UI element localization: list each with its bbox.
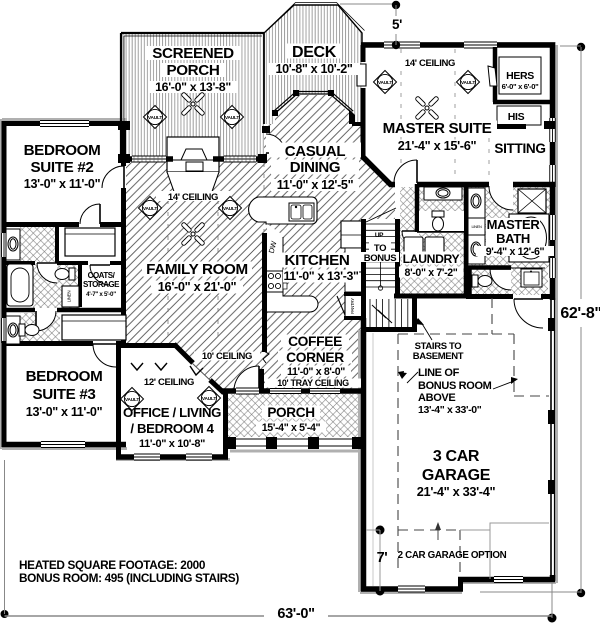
svg-text:13'-4" x 33'-0": 13'-4" x 33'-0" xyxy=(418,404,482,416)
svg-text:MASTER: MASTER xyxy=(487,217,541,232)
svg-text:VAULT: VAULT xyxy=(378,80,393,86)
svg-text:16'-0" x 13'-8": 16'-0" x 13'-8" xyxy=(155,80,231,94)
svg-text:3 CAR: 3 CAR xyxy=(433,448,480,465)
svg-text:DINING: DINING xyxy=(290,159,340,176)
svg-text:HIS: HIS xyxy=(508,111,525,123)
svg-text:VAULT: VAULT xyxy=(125,397,140,403)
svg-text:STORAGE: STORAGE xyxy=(83,280,120,289)
svg-text:LINE OF: LINE OF xyxy=(418,367,460,379)
svg-text:11'-0" x 8'-0": 11'-0" x 8'-0" xyxy=(287,366,345,378)
svg-text:SUITE #2: SUITE #2 xyxy=(30,159,93,176)
svg-text:4'-7" x 5'-0": 4'-7" x 5'-0" xyxy=(86,291,116,298)
svg-text:PORCH: PORCH xyxy=(166,62,219,79)
svg-text:BONUS: BONUS xyxy=(364,253,397,264)
svg-text:DECK: DECK xyxy=(292,44,337,61)
svg-text:HERS: HERS xyxy=(506,70,534,82)
svg-text:11'-0" x 10'-8": 11'-0" x 10'-8" xyxy=(139,438,205,450)
svg-text:6'-0" x 6'-0": 6'-0" x 6'-0" xyxy=(502,82,539,91)
svg-text:BEDROOM: BEDROOM xyxy=(24,142,101,159)
svg-text:LINEN: LINEN xyxy=(471,224,481,229)
svg-text:9'-4" x 12'-6": 9'-4" x 12'-6" xyxy=(486,246,545,258)
svg-text:VAULT: VAULT xyxy=(461,80,476,86)
svg-text:8'-0" x 7'-2": 8'-0" x 7'-2" xyxy=(405,267,458,279)
svg-text:10'-8" x 10'-2": 10'-8" x 10'-2" xyxy=(275,62,352,76)
svg-text:/ BEDROOM 4: / BEDROOM 4 xyxy=(130,421,214,436)
svg-text:16'-0" x 21'-0": 16'-0" x 21'-0" xyxy=(158,279,237,294)
svg-text:10' TRAY CEILING: 10' TRAY CEILING xyxy=(277,378,349,388)
svg-text:21'-4" x 33'-4": 21'-4" x 33'-4" xyxy=(417,484,496,499)
svg-text:2 CAR GARAGE OPTION: 2 CAR GARAGE OPTION xyxy=(398,550,507,561)
svg-text:UP: UP xyxy=(375,232,384,239)
svg-text:GARAGE: GARAGE xyxy=(422,467,491,484)
svg-text:VAULT: VAULT xyxy=(223,206,238,212)
svg-text:BEDROOM: BEDROOM xyxy=(26,368,103,385)
svg-text:KITCHEN: KITCHEN xyxy=(284,252,349,269)
svg-text:FAMILY ROOM: FAMILY ROOM xyxy=(146,261,248,278)
svg-text:63'-0": 63'-0" xyxy=(277,606,314,622)
svg-text:VAULT: VAULT xyxy=(143,206,158,212)
svg-text:21'-4" x 15'-6": 21'-4" x 15'-6" xyxy=(398,138,477,153)
svg-text:11'-0" x 13'-3": 11'-0" x 13'-3" xyxy=(283,269,359,283)
svg-text:SCREENED: SCREENED xyxy=(152,45,234,62)
svg-text:PORCH: PORCH xyxy=(267,405,314,420)
svg-text:14' CEILING: 14' CEILING xyxy=(405,58,455,69)
svg-text:13'-0" x 11'-0": 13'-0" x 11'-0" xyxy=(26,405,103,419)
svg-text:5': 5' xyxy=(392,17,402,32)
svg-text:62'-8": 62'-8" xyxy=(560,305,600,322)
svg-text:15'-4" x 5'-4": 15'-4" x 5'-4" xyxy=(262,422,321,434)
svg-text:COATS/: COATS/ xyxy=(88,271,116,280)
svg-text:12' CEILING: 12' CEILING xyxy=(144,377,194,388)
svg-text:PANTRY: PANTRY xyxy=(350,298,355,314)
svg-text:7': 7' xyxy=(377,550,388,566)
svg-text:LINEN: LINEN xyxy=(67,291,72,303)
svg-text:BONUS ROOM: 495 (INCLUDING STA: BONUS ROOM: 495 (INCLUDING STAIRS) xyxy=(19,571,239,585)
svg-text:BATH: BATH xyxy=(496,231,530,246)
svg-text:11'-0" x 12'-5": 11'-0" x 12'-5" xyxy=(277,178,354,192)
svg-text:CORNER: CORNER xyxy=(286,350,344,365)
svg-text:BASEMENT: BASEMENT xyxy=(413,351,464,362)
svg-text:COFFEE: COFFEE xyxy=(288,334,342,349)
svg-text:VAULT: VAULT xyxy=(148,115,163,121)
svg-text:13'-0" x 11'-0": 13'-0" x 11'-0" xyxy=(24,177,101,191)
svg-text:SUITE #3: SUITE #3 xyxy=(32,386,95,403)
svg-text:VAULT: VAULT xyxy=(225,115,240,121)
svg-text:HEATED SQUARE FOOTAGE: 2000: HEATED SQUARE FOOTAGE: 2000 xyxy=(19,558,206,572)
svg-text:BONUS ROOM: BONUS ROOM xyxy=(418,380,492,392)
svg-text:ABOVE: ABOVE xyxy=(418,392,455,404)
svg-text:LAUNDRY: LAUNDRY xyxy=(403,252,460,266)
svg-text:MASTER SUITE: MASTER SUITE xyxy=(383,120,492,137)
svg-text:10' CEILING: 10' CEILING xyxy=(202,351,252,362)
svg-text:SITTING: SITTING xyxy=(494,141,545,156)
svg-text:CASUAL: CASUAL xyxy=(285,143,346,160)
svg-text:VAULT: VAULT xyxy=(202,396,217,402)
svg-text:14' CEILING: 14' CEILING xyxy=(168,192,218,203)
